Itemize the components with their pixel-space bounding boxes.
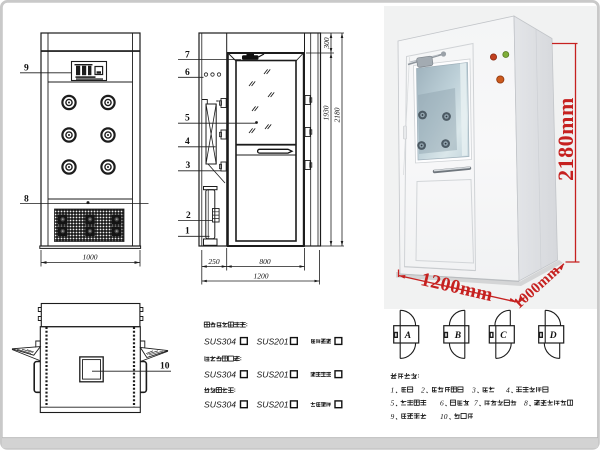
svg-text:1: 1 — [185, 227, 190, 237]
svg-text:C: C — [500, 331, 507, 341]
svg-text:3: 3 — [471, 385, 476, 394]
svg-text:B: B — [454, 331, 461, 341]
svg-text:2180mm: 2180mm — [553, 97, 578, 181]
svg-text:2: 2 — [421, 385, 425, 394]
svg-text:1200: 1200 — [254, 271, 269, 280]
svg-text:SUS201: SUS201 — [257, 370, 289, 380]
svg-text:250: 250 — [208, 257, 220, 266]
svg-text:5: 5 — [185, 114, 190, 124]
svg-text:SUS304: SUS304 — [204, 336, 236, 346]
svg-text:1000: 1000 — [83, 253, 98, 262]
svg-text:D: D — [549, 331, 557, 341]
svg-text:7: 7 — [474, 399, 478, 408]
svg-text:9: 9 — [24, 64, 29, 74]
svg-text:10: 10 — [160, 362, 170, 372]
svg-text:6: 6 — [185, 68, 190, 78]
svg-text:5: 5 — [391, 399, 395, 408]
svg-text:4: 4 — [185, 137, 190, 147]
svg-text:1930: 1930 — [322, 105, 331, 120]
svg-text:3: 3 — [186, 161, 191, 171]
svg-text:6: 6 — [440, 399, 444, 408]
svg-text:SUS201: SUS201 — [257, 400, 289, 410]
svg-text:10: 10 — [440, 412, 448, 421]
svg-text:2180: 2180 — [333, 107, 342, 122]
svg-text:800: 800 — [259, 257, 271, 266]
svg-text:4: 4 — [506, 385, 510, 394]
svg-text:9: 9 — [391, 412, 395, 421]
svg-text:2: 2 — [186, 211, 191, 221]
svg-text:8: 8 — [24, 195, 29, 205]
svg-text:SUS201: SUS201 — [257, 336, 289, 346]
svg-text:300: 300 — [322, 37, 331, 50]
svg-text:8: 8 — [524, 399, 528, 408]
svg-text:7: 7 — [185, 51, 190, 61]
svg-text:SUS304: SUS304 — [204, 370, 236, 380]
svg-text:SUS304: SUS304 — [204, 400, 236, 410]
svg-text:1: 1 — [391, 385, 395, 394]
svg-text:A: A — [404, 331, 411, 341]
